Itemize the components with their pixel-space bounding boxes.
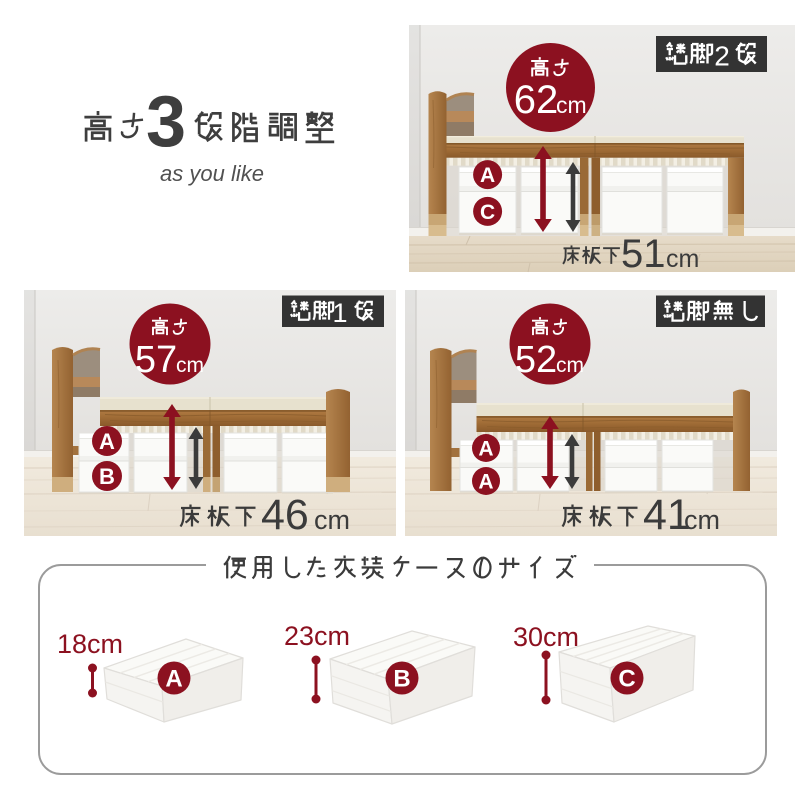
svg-text:23cm: 23cm [284, 621, 350, 651]
svg-text:cm: cm [666, 245, 699, 273]
svg-text:A: A [99, 429, 115, 454]
svg-text:cm: cm [176, 354, 204, 377]
svg-text:30cm: 30cm [513, 622, 579, 652]
svg-text:52: 52 [515, 339, 557, 381]
svg-text:A: A [478, 470, 493, 493]
svg-text:B: B [99, 464, 115, 489]
svg-text:2: 2 [714, 41, 730, 72]
svg-text:cm: cm [556, 92, 587, 118]
svg-text:C: C [480, 201, 495, 224]
svg-text:cm: cm [314, 505, 350, 535]
svg-text:51: 51 [621, 232, 666, 276]
svg-text:A: A [480, 164, 495, 187]
svg-text:3: 3 [146, 82, 186, 162]
svg-text:46: 46 [261, 491, 309, 539]
svg-text:cm: cm [684, 505, 720, 535]
svg-text:A: A [478, 437, 493, 460]
svg-text:cm: cm [556, 354, 584, 377]
svg-text:18cm: 18cm [57, 629, 123, 659]
svg-text:as you like: as you like [160, 161, 264, 186]
svg-text:B: B [393, 666, 410, 693]
svg-text:57: 57 [135, 339, 177, 381]
svg-text:C: C [618, 666, 635, 693]
svg-text:62: 62 [514, 78, 559, 122]
svg-text:1: 1 [332, 298, 347, 328]
svg-text:A: A [165, 666, 182, 693]
